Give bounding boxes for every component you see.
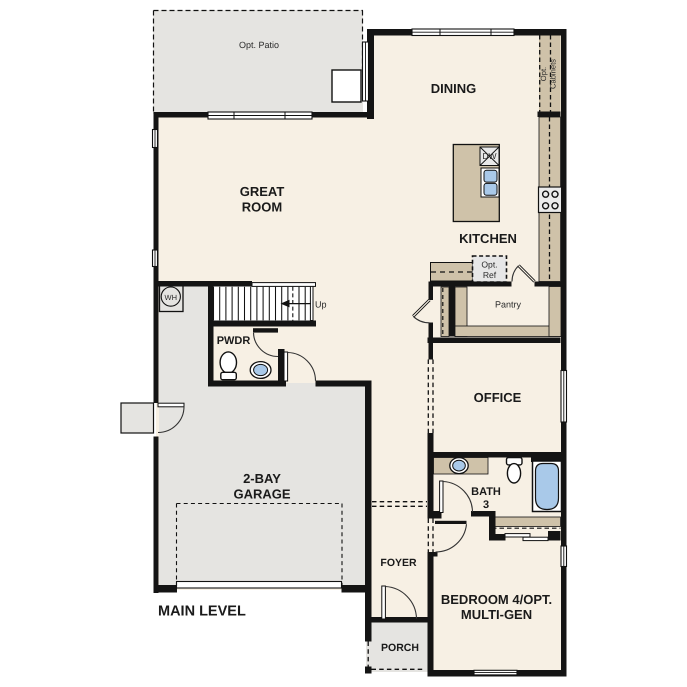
svg-text:BEDROOM 4/OPT.: BEDROOM 4/OPT. xyxy=(441,592,552,607)
svg-text:Opt.: Opt. xyxy=(539,67,548,81)
svg-text:MAIN LEVEL: MAIN LEVEL xyxy=(158,604,246,620)
svg-text:Opt. Patio: Opt. Patio xyxy=(239,40,279,50)
svg-text:Up: Up xyxy=(315,300,327,310)
svg-text:3: 3 xyxy=(483,499,489,511)
svg-text:ROOM: ROOM xyxy=(242,200,282,215)
svg-text:DW: DW xyxy=(482,151,496,161)
svg-text:2-BAY: 2-BAY xyxy=(243,471,281,486)
svg-text:Opt.: Opt. xyxy=(481,260,497,270)
svg-text:Cabinets: Cabinets xyxy=(549,59,558,89)
svg-text:BATH: BATH xyxy=(471,486,501,498)
svg-text:DINING: DINING xyxy=(431,81,477,96)
svg-text:OFFICE: OFFICE xyxy=(474,390,522,405)
svg-text:MULTI-GEN: MULTI-GEN xyxy=(461,607,532,622)
svg-text:KITCHEN: KITCHEN xyxy=(459,231,517,246)
svg-text:PWDR: PWDR xyxy=(217,335,251,347)
svg-text:WH: WH xyxy=(165,293,178,302)
svg-text:GREAT: GREAT xyxy=(240,184,285,199)
svg-text:PORCH: PORCH xyxy=(381,642,419,654)
svg-text:Pantry: Pantry xyxy=(495,300,522,310)
svg-text:FOYER: FOYER xyxy=(380,557,417,569)
svg-text:Ref: Ref xyxy=(483,270,497,280)
svg-text:GARAGE: GARAGE xyxy=(233,487,290,502)
